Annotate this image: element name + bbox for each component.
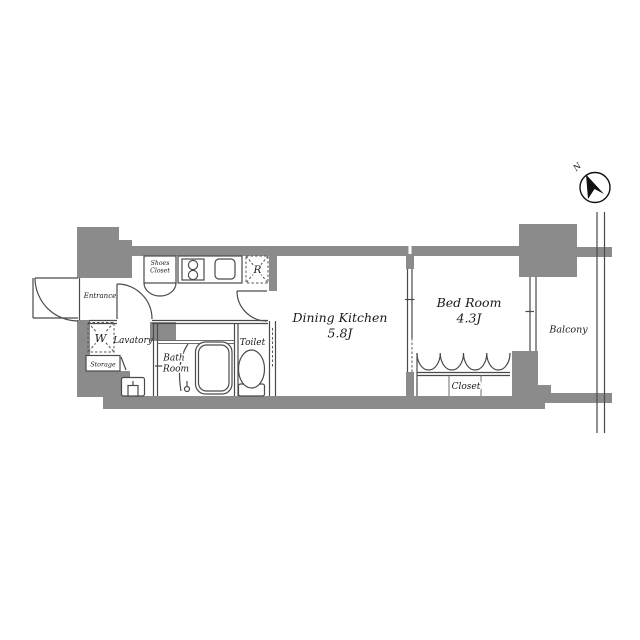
storage-label: Storage — [90, 361, 116, 369]
stove-burner — [188, 270, 197, 279]
storage-door — [121, 357, 126, 370]
kitchen-sink — [215, 259, 235, 279]
balcony-label: Balcony — [548, 325, 588, 336]
stove-burner — [188, 260, 197, 269]
dining-kitchen-size: 5.8J — [328, 326, 354, 341]
dk-bedroom-stub-bottom — [406, 372, 414, 396]
washing-machine-label: W — [95, 331, 108, 345]
refrigerator-label: R — [253, 264, 262, 276]
compass-needle — [586, 175, 604, 200]
shoes-closet: Shoes Closet — [144, 256, 176, 296]
bedroom-balcony-stub — [538, 385, 551, 396]
lavatory-door-arc — [117, 284, 152, 319]
front-door-arc — [35, 278, 78, 321]
dk-door-arc — [237, 291, 267, 321]
compass-north-label: N — [571, 161, 584, 174]
dk-west-wall-upper — [269, 254, 277, 291]
balcony-window — [526, 277, 537, 351]
bath-room-label: Bath — [162, 354, 184, 364]
bedroom-closet: Closet — [417, 353, 510, 396]
dk-bedroom-partition — [405, 269, 415, 372]
bed-room-size: 4.3J — [456, 311, 483, 326]
shoes-closet-label2: Closet — [150, 268, 170, 275]
toilet-bowl — [239, 350, 265, 388]
top-wall — [132, 246, 520, 256]
bath-tap — [185, 387, 190, 392]
bedroom-balcony-block — [512, 351, 538, 397]
bed-room-label: Bed Room — [436, 295, 502, 310]
lavatory-label: Lavatory — [112, 336, 153, 346]
floor-plan-drawing: Shoes Closet R W Lavatory Storage — [0, 0, 640, 640]
balcony: Balcony — [548, 325, 588, 336]
closet-label: Closet — [452, 382, 481, 392]
toilet: Toilet — [239, 338, 266, 396]
bath-room: Bath Room — [155, 342, 232, 394]
shoes-closet-door-arcs — [144, 283, 176, 296]
shoes-closet-label: Shoes — [151, 260, 170, 267]
dining-kitchen-label: Dining Kitchen — [292, 310, 388, 325]
refrigerator-space: R — [246, 256, 268, 283]
closet-folding-doors — [417, 353, 510, 370]
floor-plan-page: Shoes Closet R W Lavatory Storage — [0, 0, 640, 640]
entrance-label: Entrance — [83, 292, 117, 300]
bath-room-label2: Room — [162, 365, 189, 375]
top-right-stub — [577, 247, 612, 257]
dk-bedroom-stub-top — [406, 254, 414, 269]
pillar-top-left — [77, 227, 132, 278]
wash-basin-bowl — [128, 386, 138, 397]
bathtub-inner — [199, 345, 230, 391]
entrance-porch — [33, 278, 80, 321]
toilet-label: Toilet — [240, 338, 266, 348]
bottom-wall — [103, 396, 545, 409]
pillar-top-right — [519, 224, 577, 277]
dining-kitchen: Dining Kitchen 5.8J — [292, 310, 388, 341]
compass: N — [571, 161, 610, 203]
kitchen — [178, 256, 242, 283]
